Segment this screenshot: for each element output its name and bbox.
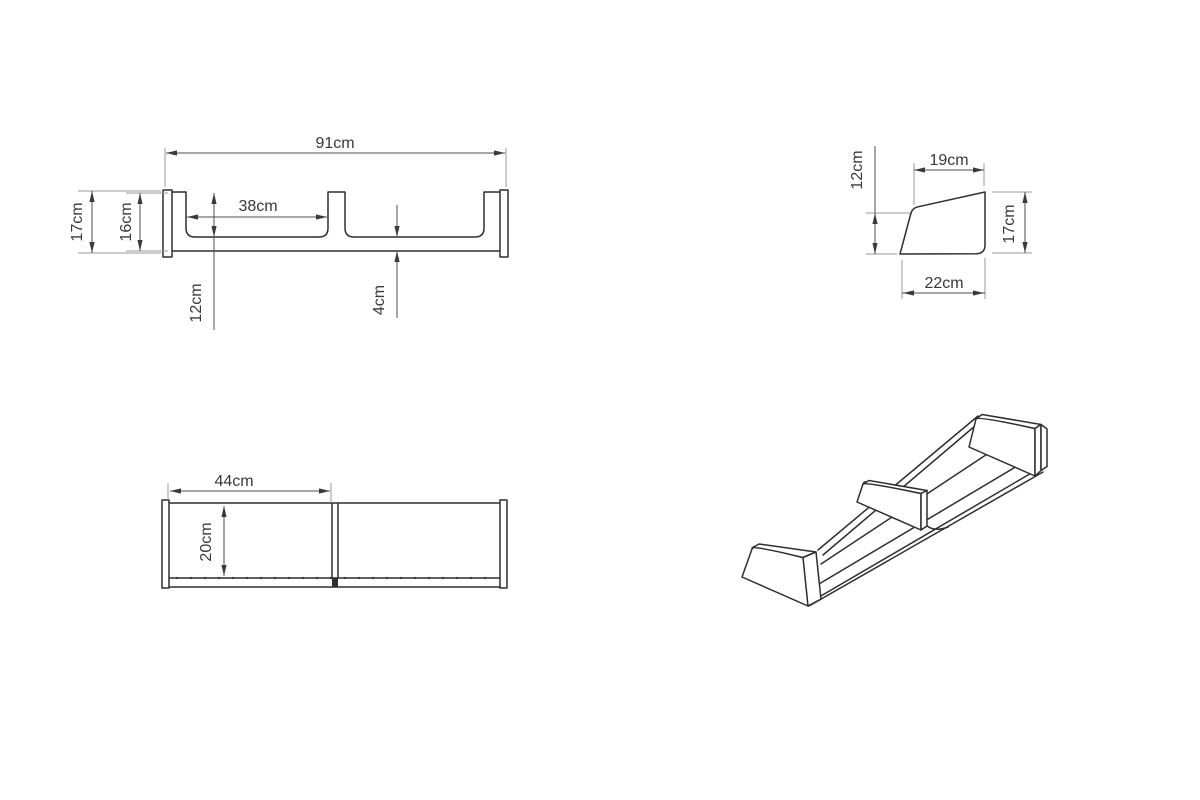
dim-label-front-outer-height: 17cm [69,202,86,241]
side-view: 19cm 12cm 17cm 22cm [849,146,1032,299]
dim-top-compartment: 44cm [168,473,331,503]
dim-side-bottom-width: 22cm [902,258,985,299]
dim-front-compartment: 38cm [187,198,327,220]
top-right-end-panel [500,500,507,588]
dim-label-front-base-thickness: 4cm [371,285,388,315]
iso-right-panel-cap [1041,425,1047,471]
dim-label-front-width: 91cm [315,135,354,152]
technical-drawing-page: 91cm 17cm 16cm 38cm [0,0,1200,800]
dim-side-back-height: 17cm [992,192,1032,253]
dim-label-top-compartment: 44cm [214,473,253,490]
iso-right-panel-front-edge [1035,425,1041,477]
drawing-canvas: 91cm 17cm 16cm 38cm [0,0,1200,800]
dim-label-side-back-height: 17cm [1001,204,1018,243]
dim-label-side-top-width: 19cm [929,152,968,169]
isometric-view [742,415,1047,607]
dim-front-inner-depth: 12cm [188,193,217,330]
iso-middle-divider-front-edge [921,491,927,531]
dim-label-front-body-height: 16cm [118,202,135,241]
dim-label-side-bottom-width: 22cm [924,275,963,292]
dim-label-front-compartment: 38cm [238,198,277,215]
top-body-outline [169,503,500,587]
top-view: 44cm 20cm [162,473,507,588]
dim-front-body-height: 16cm [118,193,168,251]
side-panel-outline [900,192,985,254]
top-middle-divider [332,503,338,578]
dim-label-side-front-height: 12cm [849,150,866,189]
dim-front-width: 91cm [165,135,506,187]
dim-label-top-depth: 20cm [198,522,215,561]
top-left-end-panel [162,500,169,588]
dim-side-top-width: 19cm [914,152,984,205]
top-divider-section [332,578,338,587]
dim-front-outer-height: 17cm [69,191,161,253]
iso-back-wall-top-edge [818,416,978,550]
front-left-end-panel [163,190,172,257]
front-body-outline [172,192,500,237]
dim-top-depth: 20cm [198,506,227,576]
dim-side-front-height: 12cm [849,146,910,254]
front-view: 91cm 17cm 16cm 38cm [69,135,508,330]
dim-label-front-inner-depth: 12cm [188,283,205,322]
dim-front-base-thickness: 4cm [371,205,400,318]
front-right-end-panel [500,190,508,257]
